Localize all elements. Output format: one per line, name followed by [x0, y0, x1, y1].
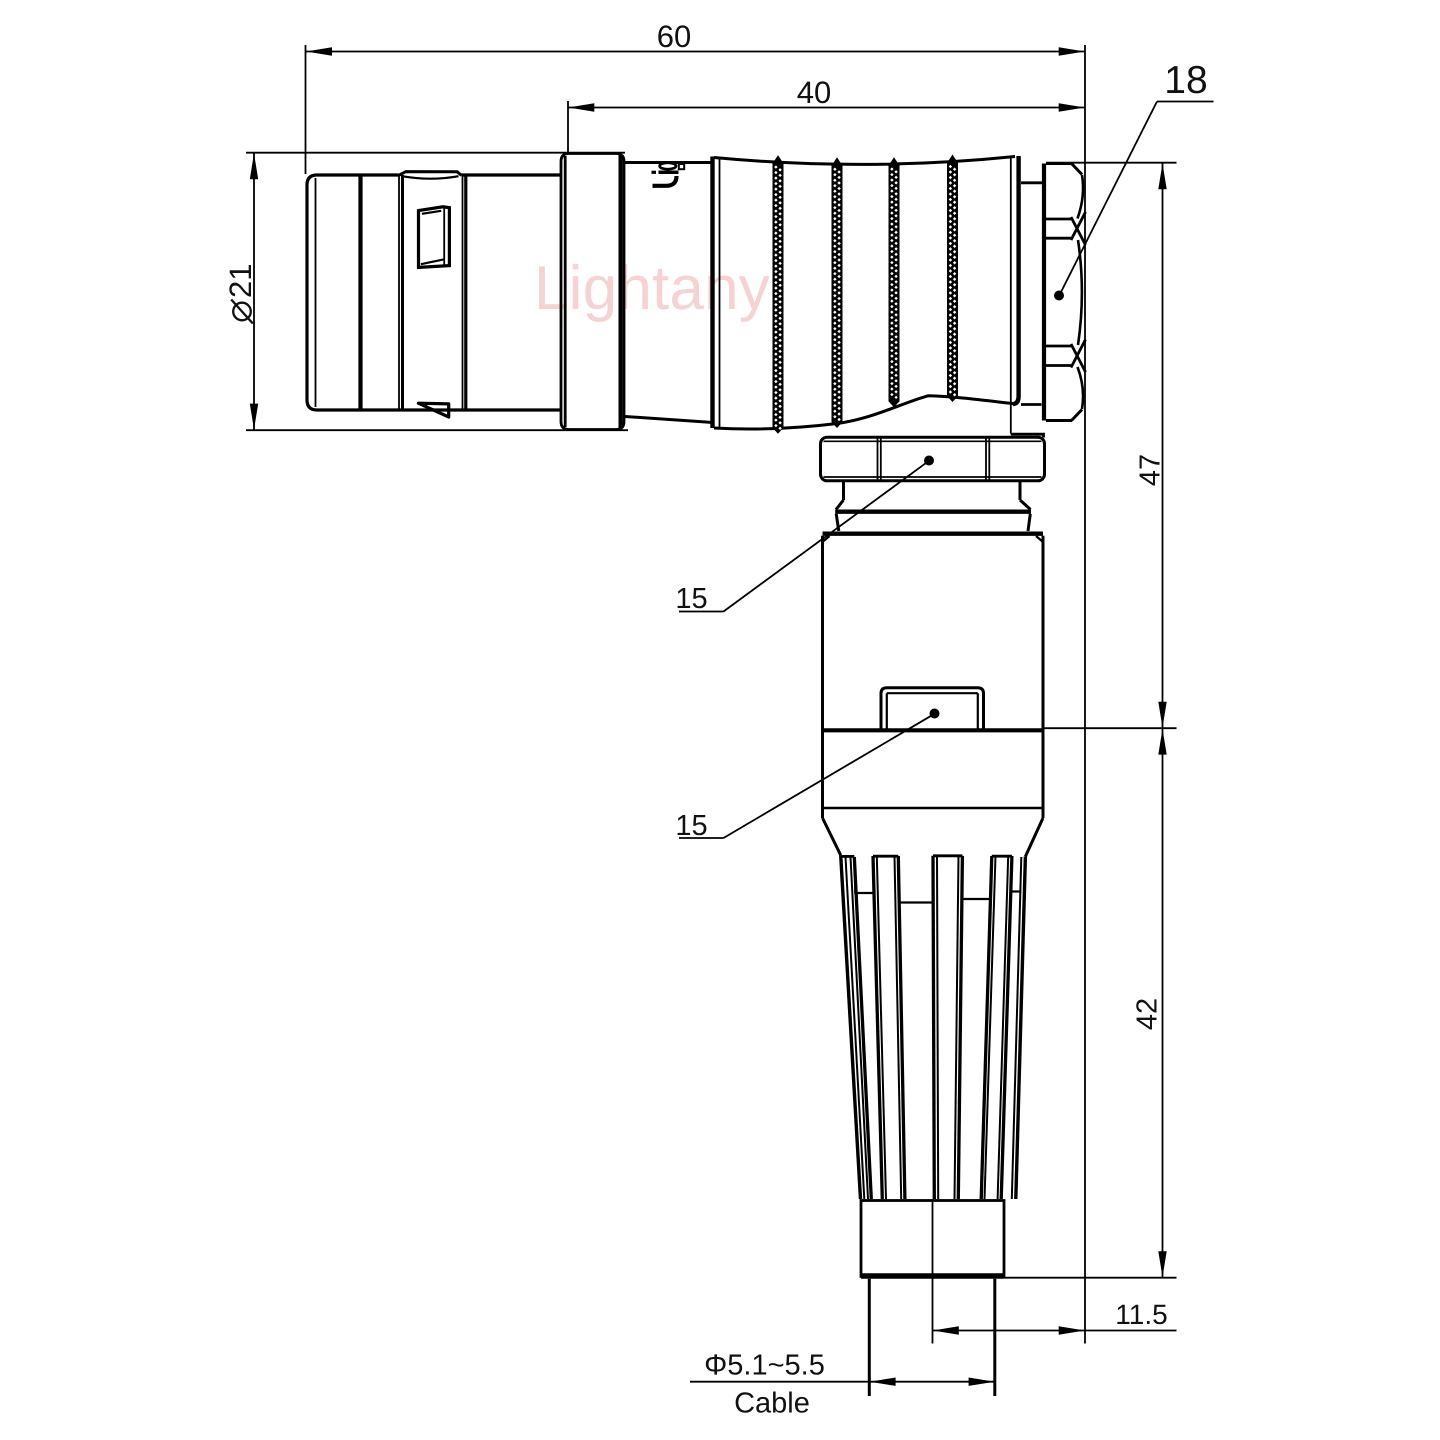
svg-text:18: 18	[1164, 59, 1207, 102]
svg-text:11.5: 11.5	[1115, 1299, 1167, 1330]
svg-text:Φ5.1~5.5: Φ5.1~5.5	[704, 1350, 825, 1382]
svg-text:60: 60	[657, 19, 691, 54]
svg-text:15: 15	[675, 583, 707, 615]
svg-text:Cable: Cable	[734, 1388, 810, 1420]
svg-text:42: 42	[1132, 998, 1164, 1030]
svg-text:40: 40	[797, 75, 831, 110]
svg-text:Lightany: Lightany	[534, 254, 770, 323]
svg-text:21: 21	[223, 264, 258, 298]
svg-text:47: 47	[1135, 454, 1167, 486]
